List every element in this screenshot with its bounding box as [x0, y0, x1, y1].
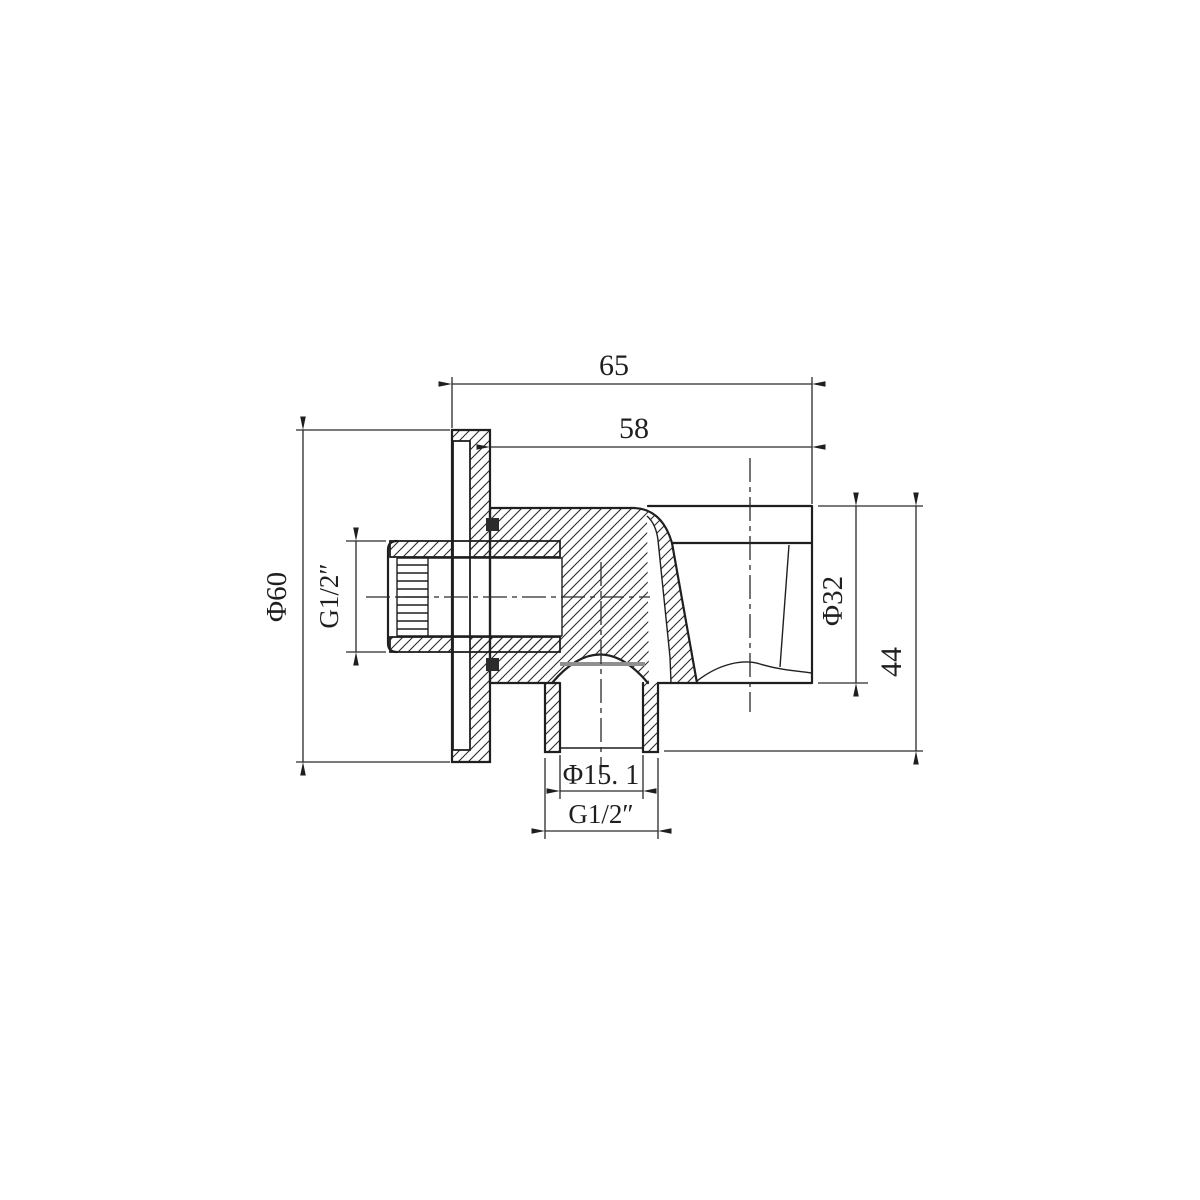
engineering-drawing-page: 65 58 Φ60 G1/2″ Φ32	[0, 0, 1200, 1200]
dim-label-flange-diameter: Φ60	[261, 572, 293, 622]
cup-inner-cylinder-line	[780, 545, 789, 667]
dim-label-outlet-thread: G1/2″	[568, 799, 633, 829]
dim-label-body-width: 58	[619, 412, 649, 445]
o-ring-bottom	[486, 658, 499, 671]
dim-label-outlet-bore: Φ15. 1	[563, 760, 639, 791]
inlet-bottom-wall-fill	[390, 637, 560, 652]
engineering-drawing: 65 58 Φ60 G1/2″ Φ32	[0, 0, 1200, 1200]
cup-break-curve	[697, 662, 812, 681]
inlet-top-wall-fill	[390, 541, 560, 557]
dim-label-overall-height: 44	[875, 647, 908, 677]
dim-outlet-bore: Φ15. 1	[560, 755, 643, 799]
o-ring-top	[486, 518, 499, 531]
dim-label-overall-width: 65	[599, 349, 629, 382]
dim-label-inlet-thread: G1/2″	[314, 563, 344, 628]
dim-label-holder-diameter: Φ32	[817, 576, 849, 626]
dim-body-width: 58	[490, 412, 812, 447]
